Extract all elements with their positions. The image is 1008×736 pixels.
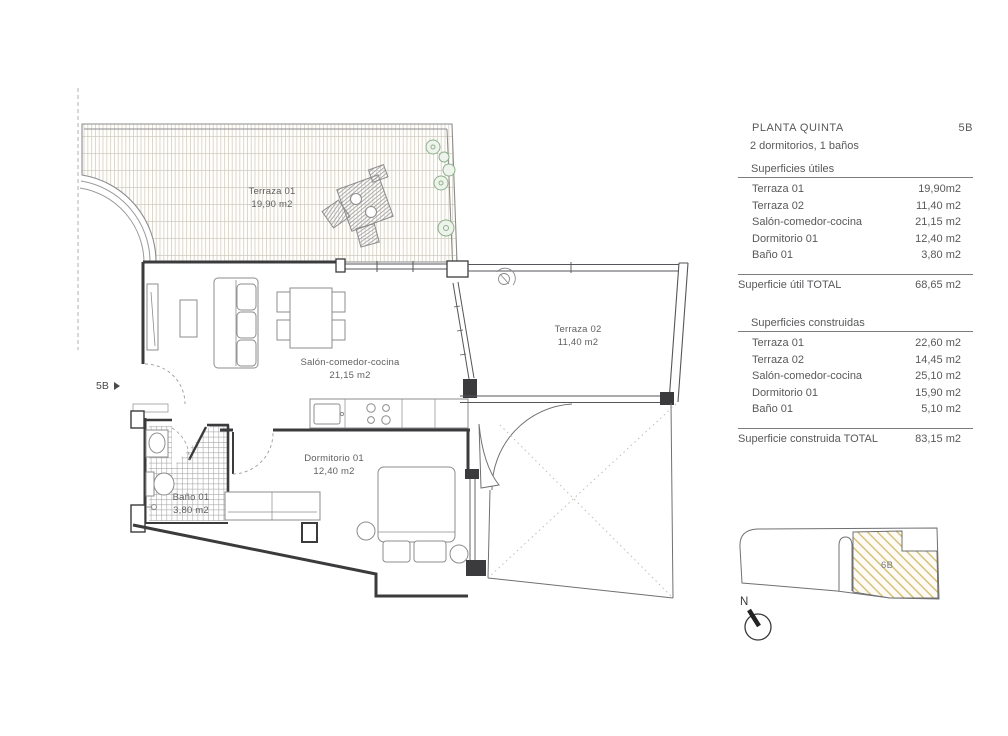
divider [738,428,973,429]
unit-badge: 5B [959,121,973,136]
toilet-icon [146,472,154,496]
room-label-terraza-01: Terraza 01 19,90 m2 [249,185,296,211]
wall-pier [463,379,477,398]
table-row: Terraza 0211,40 m2 [738,198,973,215]
key-plan [740,528,939,599]
table-row: Baño 015,10 m2 [738,401,973,418]
entrance-label: 5B [96,380,120,392]
column-pier [302,523,317,542]
room-label-terraza-02: Terraza 02 11,40 m2 [555,323,602,349]
sliding-door-glazing [453,282,474,379]
room-label-salon: Salón-comedor-cocina 21,15 m2 [300,356,399,382]
divider [738,177,973,178]
kitchen-counter [310,399,468,428]
room-label-dormitorio: Dormitorio 01 12,40 m2 [304,452,364,478]
void-area [479,403,676,598]
table-row: Dormitorio 0112,40 m2 [738,231,973,248]
void-cross-dashed [490,404,676,596]
useful-surfaces-heading: Superficies útiles [738,163,973,176]
bed-icon [357,467,468,563]
page-title: PLANTA QUINTA [752,121,844,136]
kitchen-sink [314,404,340,424]
built-total-row: Superficie construida TOTAL 83,15 m2 [738,431,973,447]
floorplan-page: Terraza 01 19,90 m2 Salón-comedor-cocina… [0,0,1008,736]
bedside-table-icon [450,545,468,563]
key-plan-unit-label: 6B [881,560,893,571]
table-row: Salón-comedor-cocina21,15 m2 [738,214,973,231]
wardrobe-icon [225,492,320,520]
useful-surfaces-rows: Terraza 0119,90m2 Terraza 0211,40 m2 Sal… [738,181,973,264]
surface-table: PLANTA QUINTA 5B 2 dormitorios, 1 baños … [738,121,973,447]
table-row: Terraza 0122,60 m2 [738,335,973,352]
entrance-unit: 5B [96,380,109,392]
divider [738,331,973,332]
salon-furniture [147,278,345,368]
plan-subtitle: 2 dormitorios, 1 baños [738,139,973,153]
table-row: Salón-comedor-cocina25,10 m2 [738,368,973,385]
table-row: Dormitorio 0115,90 m2 [738,385,973,402]
entrance-direction-icon [114,382,120,390]
curved-door-leaf [479,424,499,488]
table-row: Terraza 0214,45 m2 [738,352,973,369]
stair-core [839,537,852,591]
built-surfaces-heading: Superficies construidas [738,317,973,330]
north-arrow-icon [745,610,771,640]
bedside-table-icon [357,522,375,540]
north-label: N [740,596,748,608]
plan-header: PLANTA QUINTA 5B [738,121,973,136]
built-surfaces-rows: Terraza 0122,60 m2 Terraza 0214,45 m2 Sa… [738,335,973,418]
divider [738,274,973,275]
table-row: Terraza 0119,90m2 [738,181,973,198]
terraza-01-area [78,88,457,350]
entrance-door-swing [145,364,185,404]
table-row: Baño 013,80 m2 [738,247,973,264]
useful-total-row: Superficie útil TOTAL 68,65 m2 [738,277,973,293]
room-label-bano: Baño 01 3,80 m2 [173,491,210,517]
